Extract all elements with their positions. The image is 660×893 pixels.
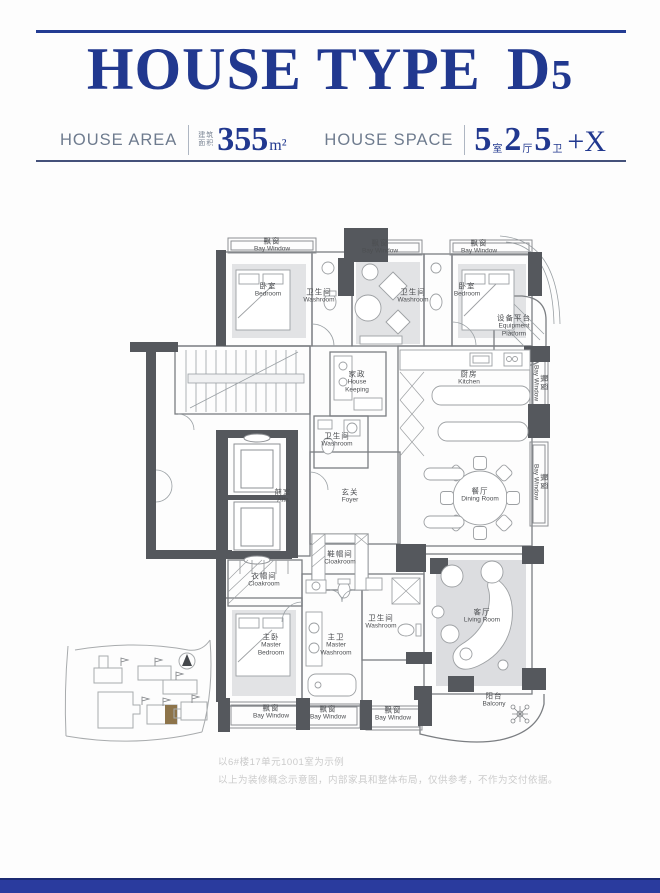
staircase (186, 350, 304, 412)
room-label-bay-window-bottom-1: 飘窗Bay Window (253, 704, 289, 721)
room-label-living-room: 客厅Living Room (464, 608, 500, 625)
room-label-bay-window-top-2: 飘窗Bay Window (362, 239, 398, 256)
bottom-accent-bar (0, 878, 660, 893)
room-label-bay-window-right-2: 飘窗Bay Window (532, 464, 549, 500)
room-label-bedroom-2: 卧室Bedroom (454, 282, 480, 299)
room-label-house-keeping: 家政House Keeping (345, 370, 369, 395)
plant-icon (511, 705, 529, 723)
room-label-master-washroom: 主卫Master Washroom (320, 633, 351, 658)
room-label-dining-room: 餐厅Dining Room (461, 487, 499, 504)
room-label-master-bedroom: 主卧Master Bedroom (258, 633, 284, 658)
room-label-washroom-3: 卫生间Washroom (321, 432, 352, 449)
room-label-balcony: 阳台Balcony (482, 692, 505, 709)
brochure-page: HOUSE TYPED5 HOUSE AREA 建筑 面积 355 m² HOU… (0, 0, 660, 893)
room-label-bay-window-right-1: 飘窗Bay Window (532, 365, 549, 401)
room-label-kitchen: 厨房Kitchen (458, 370, 480, 387)
room-label-cloakroom-foyer: 鞋帽间Cloakroom (324, 550, 355, 567)
footnote-line-2: 以上为装修概念示意图，内部家具和整体布局，仅供参考，不作为交付依据。 (218, 772, 558, 786)
room-label-bay-window-bottom-3: 飘窗Bay Window (375, 706, 411, 723)
room-label-washroom-1: 卫生间Washroom (303, 288, 334, 305)
site-map (65, 640, 211, 741)
footnote-line-1: 以6#楼17单元1001室为示例 (218, 754, 344, 768)
room-label-bedroom-1: 卧室Bedroom (255, 282, 281, 299)
highlighted-building (165, 705, 177, 724)
room-label-bay-window-bottom-2: 飘窗Bay Window (310, 705, 346, 722)
room-label-washroom-2: 卫生间Washroom (397, 288, 428, 305)
room-label-anteroom: 前室Atta (275, 488, 292, 505)
room-label-bay-window-top-1: 飘窗Bay Window (254, 237, 290, 254)
compass-icon (179, 653, 195, 669)
room-label-foyer: 玄关Foyer (342, 488, 359, 505)
room-label-cloakroom-master: 衣帽间Cloakroom (248, 572, 279, 589)
room-label-bay-window-top-3: 飘窗Bay Window (461, 239, 497, 256)
room-label-equipment-platform: 设备平台Equipment Platform (497, 314, 531, 339)
room-label-washroom-4: 卫生间Washroom (365, 614, 396, 631)
